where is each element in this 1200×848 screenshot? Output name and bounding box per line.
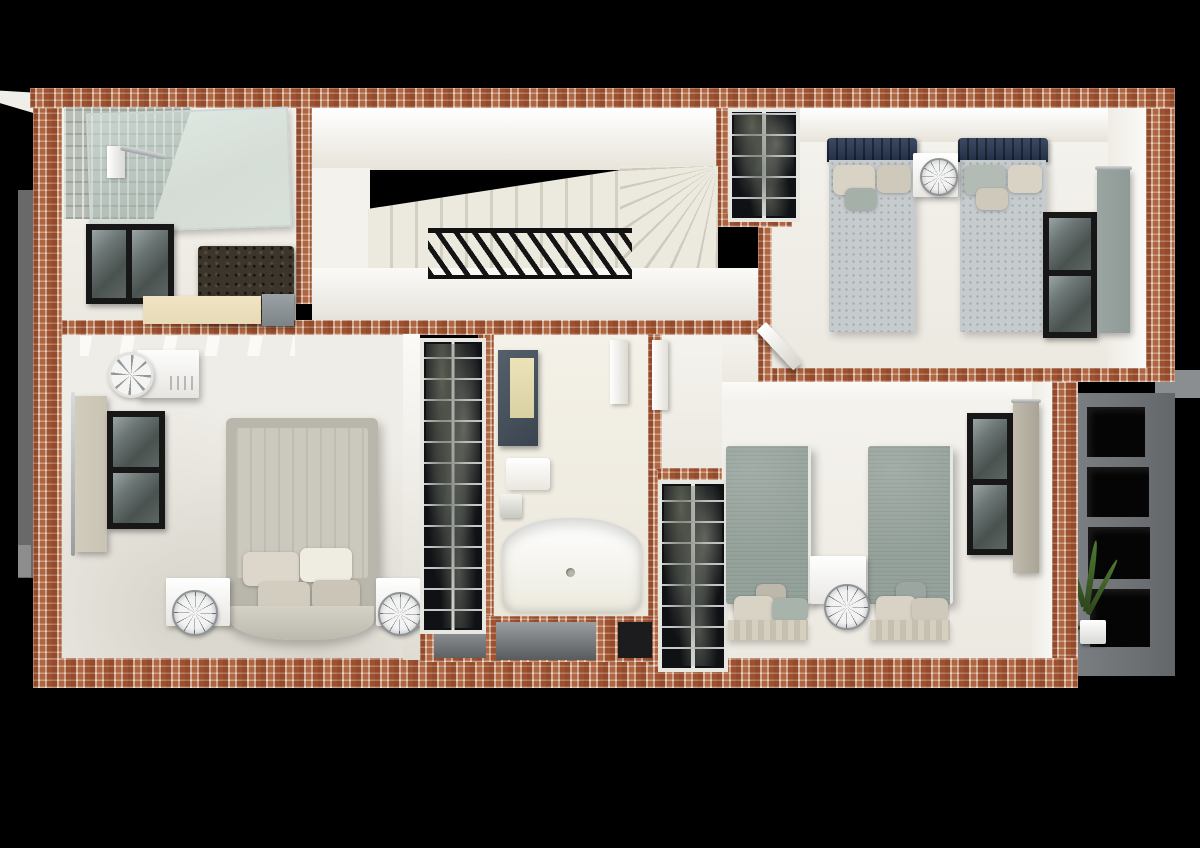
stairhall-upper-face (312, 108, 758, 170)
towel-rail (610, 340, 628, 404)
ensuite-window-pane-right (132, 230, 168, 298)
closet-lower-clothes (664, 486, 722, 666)
bottom-niche-3 (618, 622, 652, 658)
twin-right-bed2-blanket (870, 620, 950, 640)
side-strip-left-end (18, 545, 31, 577)
mirror-cabinet-reflection (510, 358, 534, 418)
wall-twin-top-west (758, 227, 772, 382)
master-bed-foot-mattress (230, 606, 374, 640)
facade-niche-1 (1087, 407, 1145, 457)
master-pillow-1 (243, 552, 299, 586)
twin-top-curtain-rod (1095, 166, 1132, 170)
plant-pot (1080, 620, 1106, 644)
twin-right-bed1-pillow-2 (734, 596, 774, 622)
twin-top-bed2-pillow-3 (976, 188, 1008, 210)
bathtub (502, 518, 642, 612)
master-window (107, 411, 165, 529)
twin-right-window-pane-lower (973, 485, 1007, 549)
twin-top-bed1-pillow-2 (877, 165, 911, 193)
wall-closet2-top (656, 468, 722, 480)
floorplan-render (0, 0, 1200, 848)
closet-lower-shelving (658, 480, 728, 672)
twin-right-lamp (824, 584, 870, 630)
twin-right-bed2-pillow-3 (912, 598, 948, 622)
bath-faucet-fixture (500, 494, 522, 518)
exterior-wall-right-upper (1146, 108, 1175, 382)
wall-ensuite-stairs (296, 108, 312, 304)
stair-railing (428, 228, 632, 279)
master-window-pane-lower (113, 473, 159, 523)
master-curtain-rod (71, 392, 75, 556)
wall-twin-top-south (772, 368, 1148, 382)
corridor-floor-2 (722, 335, 758, 382)
twin-top-bed1-headboard (827, 138, 917, 162)
vanity-counter (143, 296, 261, 324)
vanity-cabinet (262, 294, 294, 326)
twin-top-bed2-headboard (958, 138, 1048, 162)
facade-niche-3 (1088, 527, 1150, 579)
master-window-pane-upper (113, 417, 159, 467)
twin-right-curtain (1013, 403, 1039, 573)
closet-top-clothes (734, 114, 794, 216)
bathtub-drain (566, 568, 575, 577)
twin-right-bed2 (868, 446, 953, 604)
twin-right-curtain-rod (1011, 399, 1041, 403)
exterior-wall-top (30, 88, 1175, 108)
exterior-wall-right-lower (1052, 382, 1078, 670)
facade-niche-2 (1087, 467, 1149, 517)
twin-top-window-pane-upper (1049, 218, 1091, 270)
twin-top-north-face (772, 108, 1146, 142)
ensuite-window-pane-left (92, 230, 126, 298)
twin-top-lamp (920, 158, 958, 196)
master-ceiling-fan (108, 352, 154, 398)
toilet (506, 458, 550, 490)
twin-top-window (1043, 212, 1097, 338)
ensuite-window (86, 224, 174, 304)
twin-top-window-pane-lower (1049, 276, 1091, 332)
twin-right-bed1-pillow-3 (772, 598, 808, 622)
side-strip-left (18, 190, 33, 578)
twin-top-curtain (1097, 170, 1130, 333)
twin-right-bed2-pillow-2 (876, 596, 916, 622)
walkin-closet-shelving (420, 338, 486, 634)
twin-right-north-face (722, 382, 1052, 402)
twin-right-window (967, 413, 1013, 555)
stairhall-side-face (312, 168, 370, 270)
master-curtain (74, 396, 107, 552)
closet-top-shelving (728, 108, 800, 222)
twin-top-bed1-pillow-3 (845, 188, 877, 210)
master-lamp-right (378, 592, 422, 636)
twin-right-bed1-blanket (728, 620, 808, 640)
twin-right-bed1 (726, 446, 811, 604)
hall-door-panel (652, 340, 668, 410)
master-pillow-2 (300, 548, 352, 582)
twin-right-window-pane-upper (973, 419, 1007, 479)
bottom-niche-2 (496, 622, 596, 660)
walkin-closet-clothes (426, 344, 480, 628)
twin-top-bed2-pillow-2 (1008, 165, 1042, 193)
exterior-wall-left (33, 108, 62, 660)
master-lamp-left (172, 590, 218, 636)
exterior-wall-bottom (33, 658, 1078, 688)
staircase-winder (620, 166, 718, 268)
